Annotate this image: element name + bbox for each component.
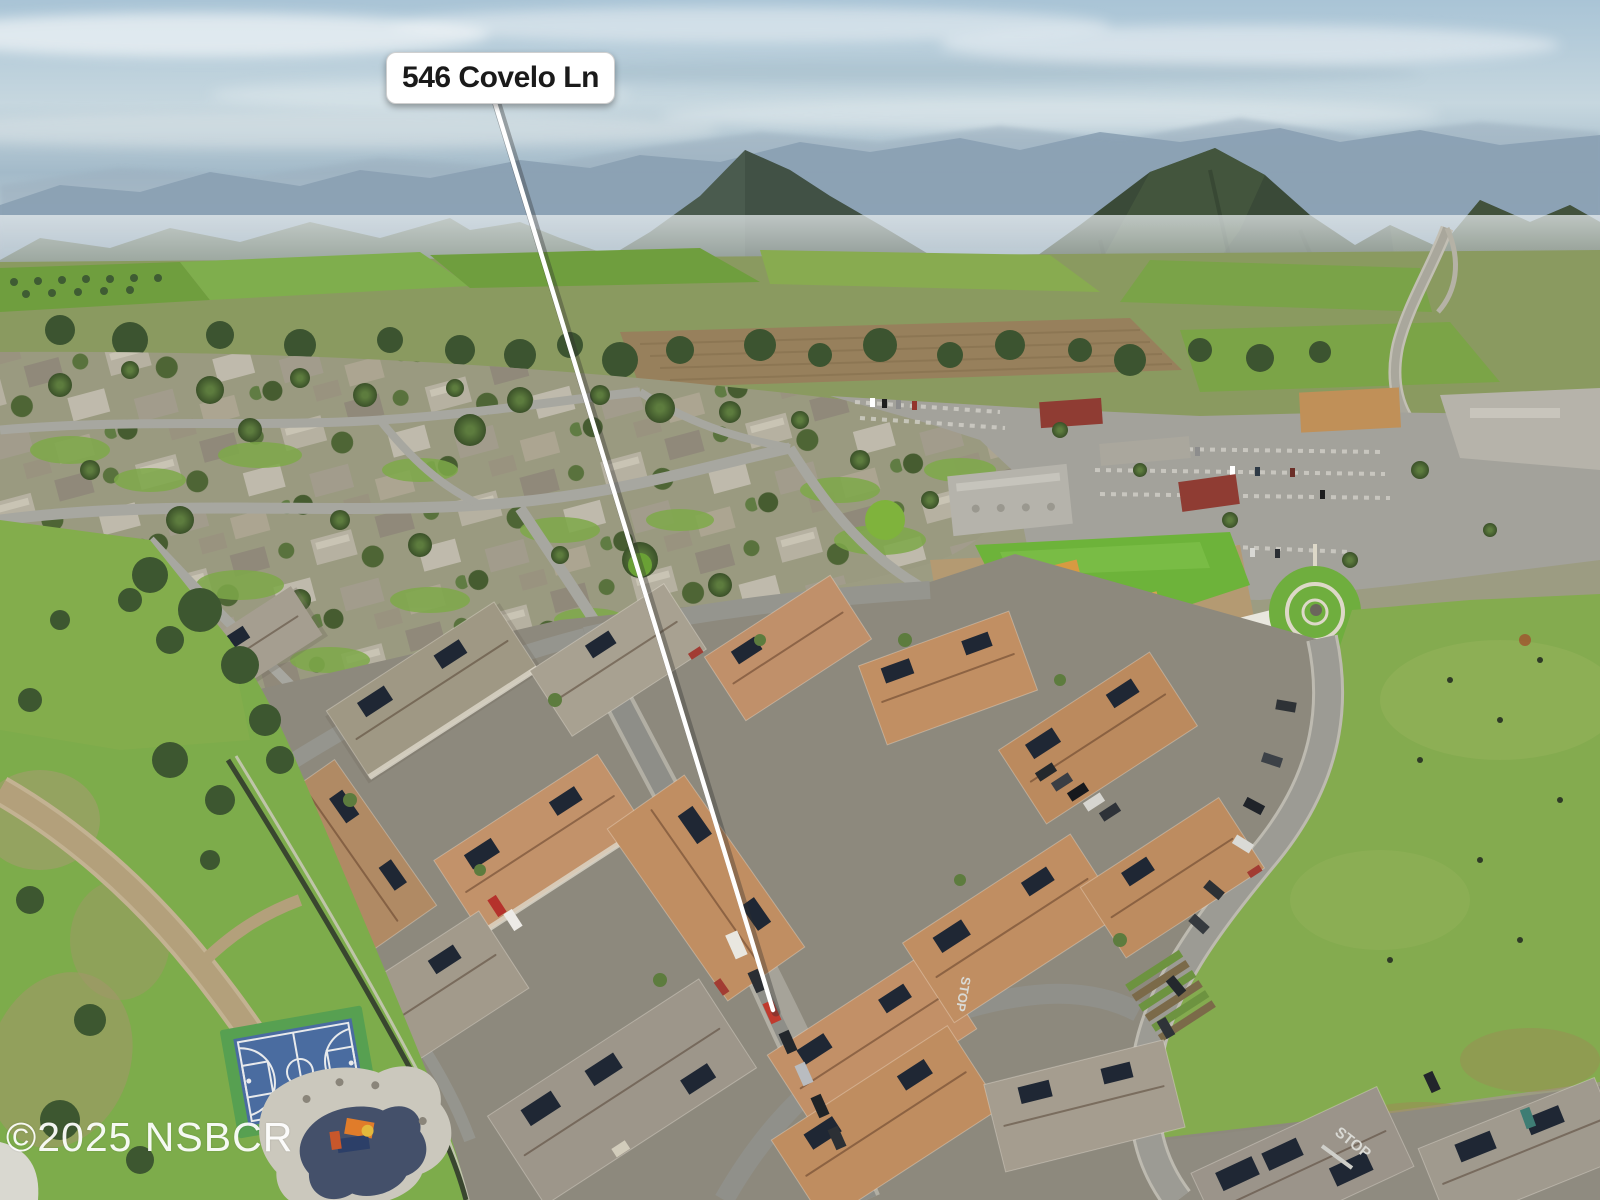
aerial-scene: STOP STOP (0, 0, 1600, 1200)
red-roof-building (1039, 398, 1103, 428)
aerial-photo: STOP STOP 546 Covelo Ln ©2025 NSBCR (0, 0, 1600, 1200)
gazebo (1310, 604, 1322, 616)
tan-building (1299, 387, 1401, 432)
copyright-watermark: ©2025 NSBCR (6, 1114, 293, 1161)
bright-tree (865, 500, 905, 540)
address-label-text: 546 Covelo Ln (402, 61, 599, 95)
strip-mall (1440, 388, 1600, 470)
warehouse-building (947, 464, 1073, 536)
address-label-callout: 546 Covelo Ln (386, 52, 615, 104)
